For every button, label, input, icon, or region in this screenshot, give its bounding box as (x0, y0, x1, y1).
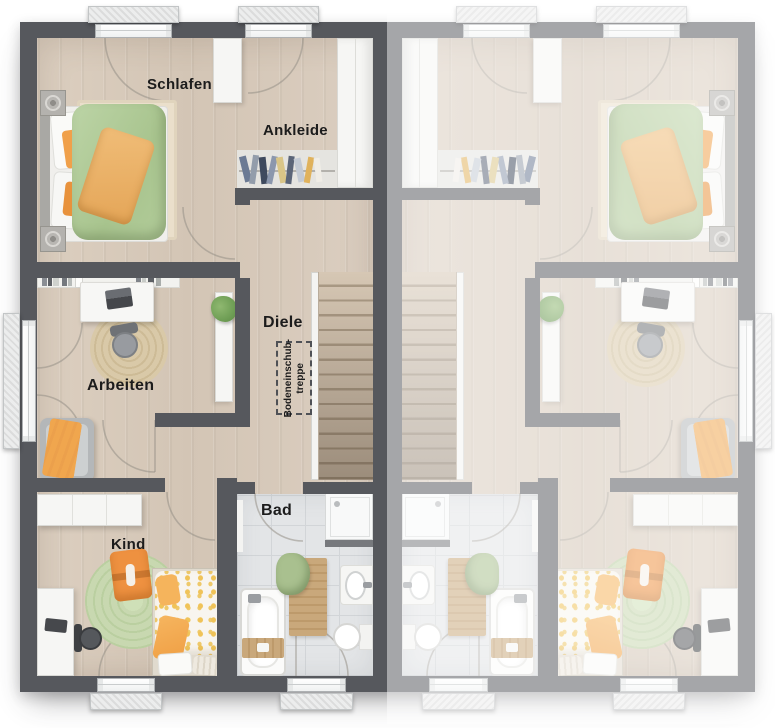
soap (506, 643, 518, 652)
chair-seat (637, 332, 663, 358)
window (95, 24, 172, 38)
bathtub (489, 588, 535, 676)
attic-hatch: Bodeneinschub- treppe (276, 341, 312, 415)
shower-drain (435, 501, 441, 507)
staircase (401, 272, 457, 480)
wardrobe (337, 38, 373, 188)
monitor (707, 618, 730, 633)
hanging-garment (314, 158, 323, 183)
wall-segment (235, 188, 373, 200)
nightstand (40, 90, 66, 116)
bedside-lamp (45, 231, 61, 247)
chair-seat (673, 627, 696, 650)
plant (211, 296, 237, 322)
laptop (105, 287, 133, 309)
window (463, 24, 530, 38)
basin-tap (403, 582, 412, 588)
window (97, 678, 155, 692)
bath-caddy (242, 638, 284, 658)
room-label-ankleide: Ankleide (263, 122, 328, 139)
kids-desk (701, 588, 738, 676)
desk (80, 282, 154, 322)
wall-segment (303, 482, 373, 494)
double-bed (609, 104, 735, 242)
wall-segment (155, 413, 250, 427)
floor-cushion (622, 548, 666, 602)
wall-segment (525, 278, 540, 415)
office-chair (633, 324, 667, 360)
sideboard-divider (106, 495, 107, 525)
tub-faucet (514, 594, 527, 603)
toilet-bowl (414, 623, 442, 651)
bed-pillow (157, 652, 192, 676)
wall-segment (37, 262, 240, 278)
window (245, 24, 312, 38)
roller-shutter-box (456, 6, 537, 23)
shower-drain (334, 501, 340, 507)
towel (465, 553, 499, 595)
toilet-tank (359, 624, 373, 650)
armchair (681, 418, 735, 482)
nightstand (40, 226, 66, 252)
wall-segment (235, 278, 250, 415)
wall-segment (538, 478, 558, 676)
bedside-lamp (714, 231, 730, 247)
bedside-lamp (714, 95, 730, 111)
nightstand (709, 90, 735, 116)
basin-bowl (409, 571, 430, 600)
window (603, 24, 680, 38)
room-label-arbeiten: Arbeiten (87, 377, 154, 395)
double-bed (40, 104, 166, 242)
room-label-schlafen: Schlafen (147, 76, 212, 93)
washbasin (340, 565, 373, 605)
soap (257, 643, 269, 652)
staircase (318, 272, 374, 480)
laptop (642, 287, 670, 309)
kids-desk (37, 588, 74, 676)
attic-hatch-label-line2: treppe (295, 363, 306, 394)
roller-shutter-box (238, 6, 319, 23)
floor-cushion (109, 548, 153, 602)
tub-faucet (248, 594, 261, 603)
window (22, 320, 36, 442)
room-label-diele: Diele (263, 314, 303, 332)
wall-segment (237, 482, 255, 494)
office-chair (108, 324, 142, 360)
sideboard-divider (702, 495, 703, 525)
window (429, 678, 488, 692)
wardrobe-divider (355, 39, 356, 187)
bedside-lamp (45, 95, 61, 111)
toilet-bowl (333, 623, 361, 651)
roller-shutter-box (280, 693, 353, 710)
floor-plan-canvas: Bodeneinschub- treppe (0, 0, 775, 728)
party-wall (373, 22, 388, 692)
desk-chair (673, 620, 701, 658)
roller-shutter-box (613, 693, 685, 710)
desk-chair (74, 620, 102, 658)
exterior-wall-top (20, 22, 388, 38)
wall-segment (610, 478, 738, 492)
unit-right-mirrored: Bodeneinschub- treppe (387, 22, 755, 692)
sideboard-divider (668, 495, 669, 525)
wardrobe-divider (419, 39, 420, 187)
toilet (402, 622, 442, 652)
wall-segment (520, 482, 538, 494)
stair-stringer (456, 272, 464, 480)
exterior-wall-top (387, 22, 755, 38)
room-label-bad: Bad (261, 502, 292, 520)
wardrobe (402, 38, 438, 188)
nightstand (709, 226, 735, 252)
sideboard (633, 494, 738, 526)
bath-caddy (491, 638, 533, 658)
roller-shutter-box (755, 313, 772, 449)
clothes-rail (237, 150, 337, 192)
closet-cabinet (213, 38, 242, 103)
roller-shutter-box (596, 6, 687, 23)
room-label-kind: Kind (111, 536, 146, 553)
chair-seat (112, 332, 138, 358)
wall-segment (217, 478, 237, 676)
toy-doll (125, 564, 135, 586)
duplex-building: Bodeneinschub- treppe (20, 22, 755, 692)
wall-segment (525, 413, 620, 427)
bathroom-door-frame (237, 500, 243, 552)
monitor (44, 618, 67, 633)
toy-doll (639, 564, 649, 586)
unit-left: Bodeneinschub- treppe (20, 22, 388, 692)
bed-headboard (725, 104, 735, 242)
party-wall (387, 22, 402, 692)
roller-shutter-box (422, 693, 495, 710)
shower (325, 492, 373, 540)
window (620, 678, 678, 692)
bathtub (240, 588, 286, 676)
sideboard-divider (72, 495, 73, 525)
roller-shutter-box (3, 313, 20, 449)
bed-headboard (40, 104, 50, 242)
sideboard (37, 494, 142, 526)
wall-segment (37, 478, 165, 492)
window (739, 320, 753, 442)
window (287, 678, 346, 692)
basin-tap (363, 582, 372, 588)
clothes-rail (438, 150, 538, 192)
chair-seat (79, 627, 102, 650)
wall-segment (402, 482, 472, 494)
roller-shutter-box (90, 693, 162, 710)
shower-ledge (325, 540, 373, 547)
wall-segment (402, 188, 540, 200)
bed-pillow (582, 652, 617, 676)
attic-hatch-label-line1: Bodeneinschub- (283, 339, 294, 417)
washbasin (402, 565, 435, 605)
roller-shutter-box (88, 6, 179, 23)
shower (402, 492, 450, 540)
toilet (333, 622, 373, 652)
shower-ledge (402, 540, 450, 547)
closet-cabinet (533, 38, 562, 103)
wall-segment (535, 262, 738, 278)
armchair (40, 418, 94, 482)
desk (621, 282, 695, 322)
